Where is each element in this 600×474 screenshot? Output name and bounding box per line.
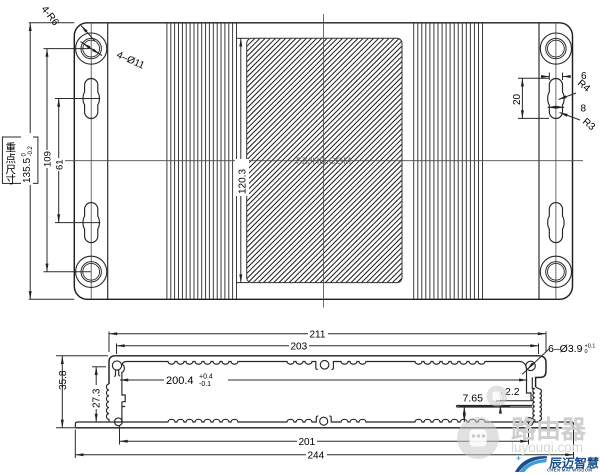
svg-text:寸: 寸 <box>6 173 17 186</box>
svg-text:20: 20 <box>512 93 523 105</box>
svg-text:109: 109 <box>43 151 54 167</box>
svg-text:61: 61 <box>55 159 66 170</box>
svg-text:135.5: 135.5 <box>22 158 33 183</box>
svg-text:6–Ø3.9: 6–Ø3.9 <box>548 343 583 355</box>
svg-text:203: 203 <box>291 341 308 352</box>
svg-text:27.3: 27.3 <box>92 388 103 408</box>
svg-text:7.65: 7.65 <box>463 393 484 405</box>
svg-text:luyouqi.com: luyouqi.com <box>511 440 583 455</box>
svg-text:200.4: 200.4 <box>166 375 194 387</box>
svg-text:CHEN MAI WISDOM: CHEN MAI WISDOM <box>547 468 592 473</box>
svg-text:0: 0 <box>585 349 588 355</box>
svg-text:-0.1: -0.1 <box>199 381 211 388</box>
svg-text:201: 201 <box>299 437 316 448</box>
svg-text:+0.4: +0.4 <box>199 374 213 381</box>
svg-text:211: 211 <box>310 329 326 340</box>
svg-text:244: 244 <box>308 451 325 462</box>
svg-text:-0.2: -0.2 <box>28 145 34 156</box>
svg-text:8: 8 <box>581 104 587 115</box>
svg-text:35.8: 35.8 <box>58 370 69 390</box>
svg-text:120.3: 120.3 <box>238 169 249 194</box>
